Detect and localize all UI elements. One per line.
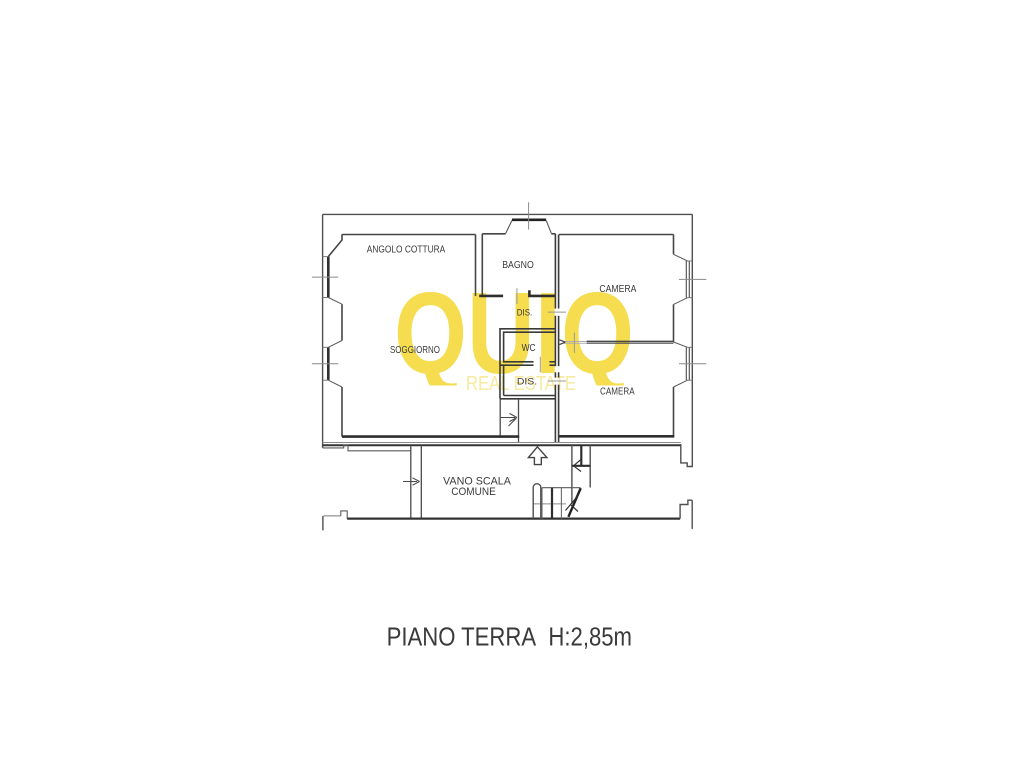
svg-text:BAGNO: BAGNO	[502, 260, 534, 271]
svg-text:CAMERA: CAMERA	[599, 284, 636, 295]
svg-text:COMUNE: COMUNE	[451, 486, 496, 498]
svg-text:CAMERA: CAMERA	[600, 387, 635, 398]
svg-text:DIS.: DIS.	[517, 377, 537, 388]
svg-text:SOGGIORNO: SOGGIORNO	[390, 345, 440, 356]
svg-text:ANGOLO COTTURA: ANGOLO COTTURA	[367, 244, 446, 255]
svg-text:PIANO TERRA H:2,85m: PIANO TERRA H:2,85m	[387, 623, 632, 651]
svg-text:DIS.: DIS.	[517, 308, 533, 318]
svg-text:WC: WC	[522, 343, 536, 354]
